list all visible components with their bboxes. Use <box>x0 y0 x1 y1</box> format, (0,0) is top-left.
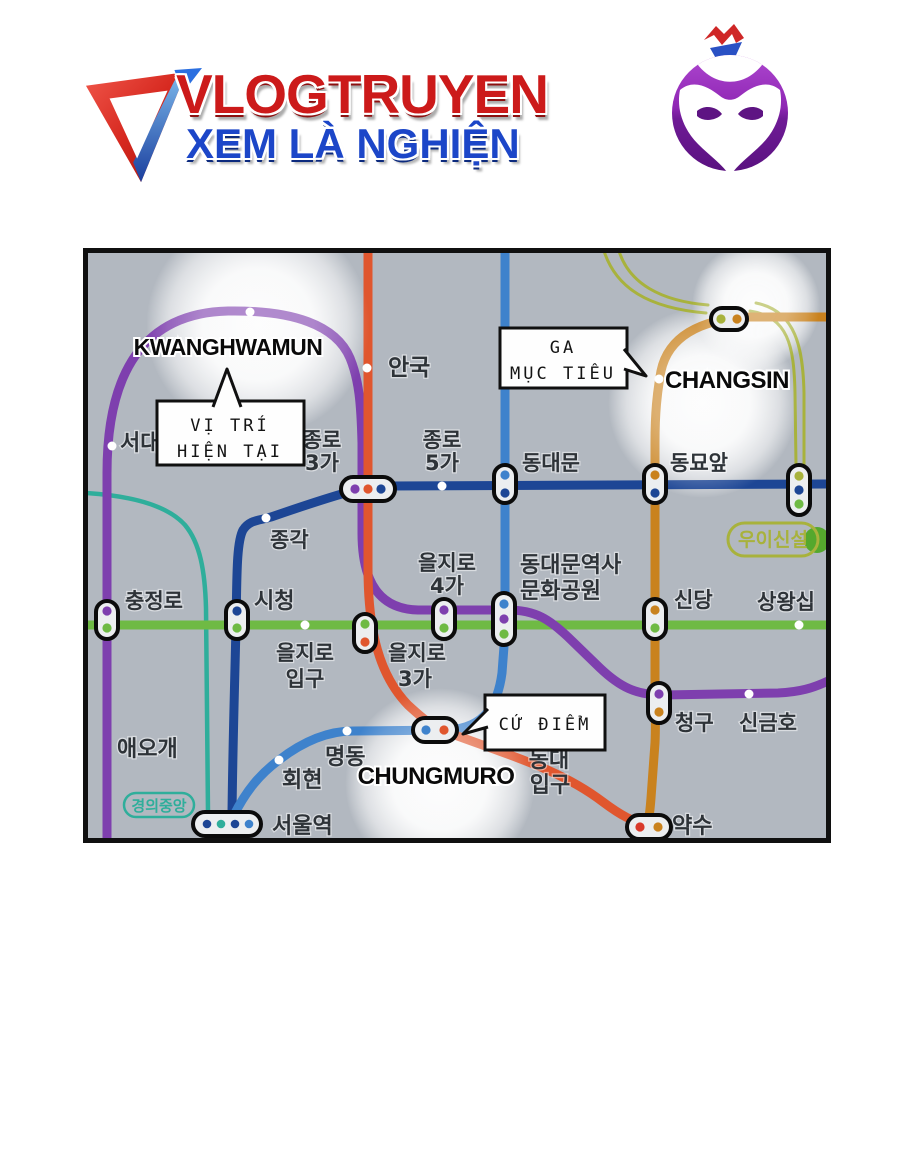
label-hoehyeon: 회현 <box>282 768 322 793</box>
callout-target-line1: GA <box>550 338 576 358</box>
label-yaksu: 약수 <box>672 814 712 838</box>
subway-map-panel: 우이신설 경의중앙 <box>83 248 831 843</box>
label-kwanghwamun: KWANGHWAMUN <box>134 334 323 360</box>
transfer-changsin-north <box>711 308 747 330</box>
transfer-jongno3ga <box>341 477 395 501</box>
label-dongdae-ipgu-2: 입구 <box>530 773 570 798</box>
site-tagline: XEM LÀ NGHIỆN <box>186 120 520 168</box>
subway-map: 우이신설 경의중앙 <box>88 253 826 838</box>
label-euljiro-ipgu-1: 을지로 <box>276 641 334 665</box>
label-jongno5ga-2: 5가 <box>425 451 460 475</box>
transfer-chungjeongno <box>96 601 118 639</box>
transfer-dongdaemun <box>494 465 516 503</box>
badge-gyeongui-label: 경의중앙 <box>131 797 186 815</box>
callout-base: CỨ ĐIỂM <box>463 695 605 750</box>
site-title: VLOGTRUYEN <box>176 62 548 126</box>
transfer-chungmuro <box>413 718 457 742</box>
label-sindang: 신당 <box>674 588 713 612</box>
transfer-yaksu <box>627 815 671 838</box>
label-euljiro3ga-2: 3가 <box>398 667 433 691</box>
comic-page: VLOGTRUYEN XEM LÀ NGHIỆN <box>0 0 900 1170</box>
label-anguk: 안국 <box>388 355 430 381</box>
transfer-cheonggu <box>648 683 670 723</box>
label-dongmyoap: 동묘앞 <box>670 451 728 475</box>
callout-target-line2: MỤC TIÊU <box>510 362 616 384</box>
label-dongdae-ipgu-1: 동대 <box>529 748 569 773</box>
label-dongdaemun: 동대문 <box>522 451 580 475</box>
transfer-sicheong <box>226 601 248 639</box>
transfer-sindang <box>644 599 666 639</box>
transfer-euljiro3ga <box>354 614 376 652</box>
label-jongno5ga-1: 종로 <box>423 428 462 452</box>
label-cheonggu: 청구 <box>675 711 714 735</box>
badge-gyeongui-jungang: 경의중앙 <box>124 793 194 817</box>
label-euljiro4ga-1: 을지로 <box>418 551 476 575</box>
label-sicheong: 시청 <box>254 589 294 614</box>
callout-target-station: GA MỤC TIÊU <box>500 328 646 388</box>
label-euljiro3ga-1: 을지로 <box>388 641 446 665</box>
label-chungjeongno: 충정로 <box>125 589 183 613</box>
label-jongno3ga-2: 3가 <box>305 451 340 475</box>
label-ddm-park-2: 문화공원 <box>520 579 601 604</box>
callout-current-line2: HIỆN TẠI <box>177 440 283 462</box>
label-euljiro-ipgu-2: 입구 <box>286 667 325 691</box>
transfer-sinseoldong <box>788 465 810 515</box>
label-seoul-station: 서울역 <box>272 814 333 838</box>
transfer-seoul-station <box>193 812 261 836</box>
callout-base-label: CỨ ĐIỂM <box>499 713 592 735</box>
badge-ui-sinseol-label: 우이신설 <box>738 529 808 551</box>
transfer-ddm-history-park <box>493 593 515 645</box>
label-chungmuro: CHUNGMURO <box>358 763 515 790</box>
label-seodaemun: 서대 <box>120 431 160 456</box>
mascot-logo-icon <box>650 18 810 198</box>
label-jongno3ga-1: 종로 <box>303 428 342 452</box>
transfer-euljiro4ga <box>433 599 455 639</box>
transfer-dongmyoap <box>644 465 666 503</box>
label-aeogae: 애오개 <box>117 737 178 762</box>
label-changsin: CHANGSIN <box>665 367 789 394</box>
label-singeumho: 신금호 <box>739 711 797 735</box>
label-jonggak: 종각 <box>270 528 309 552</box>
label-ddm-park-1: 동대문역사 <box>520 553 622 578</box>
label-euljiro4ga-2: 4가 <box>430 574 465 598</box>
label-sangwangsimni: 상왕십 <box>757 590 815 614</box>
callout-current-line1: VỊ TRÍ <box>190 414 269 436</box>
